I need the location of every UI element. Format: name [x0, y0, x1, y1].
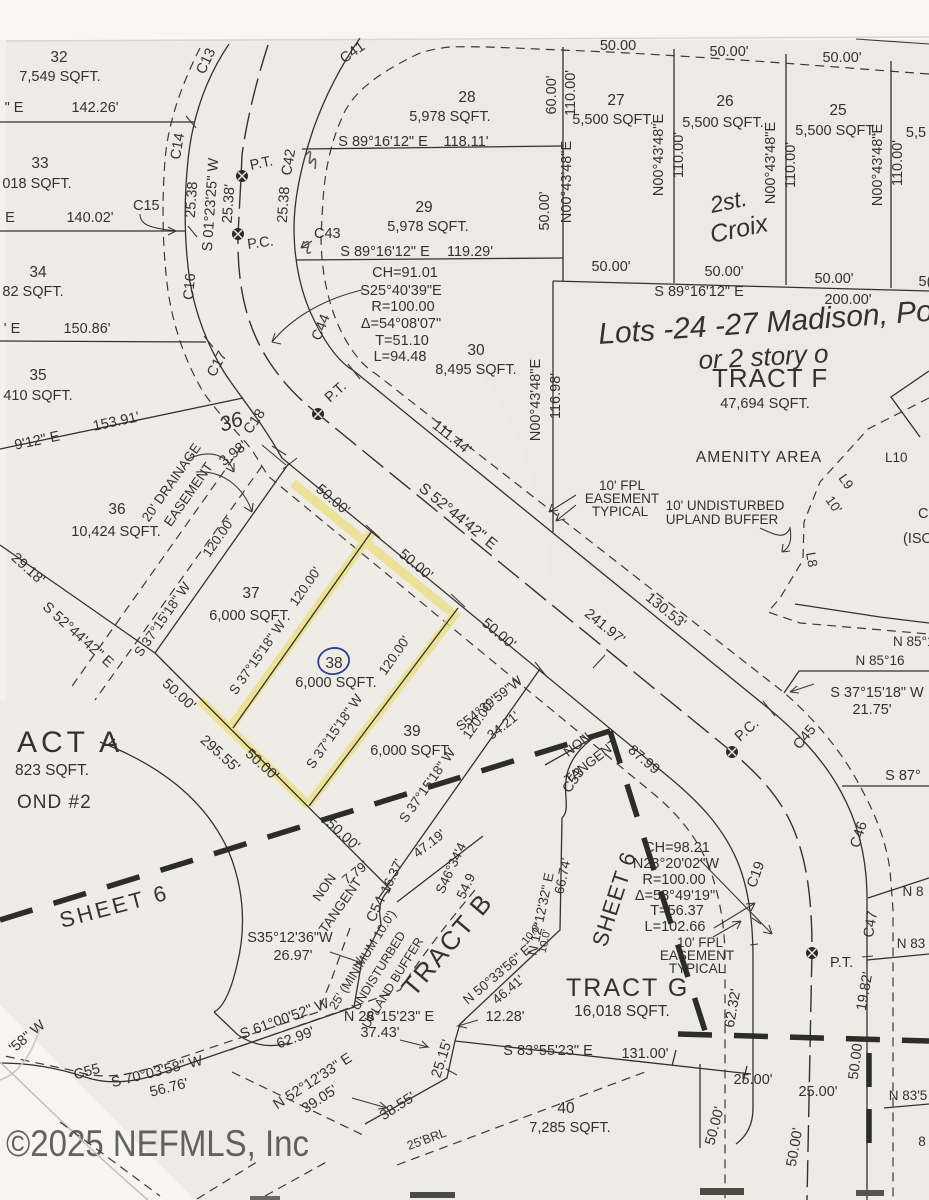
- svg-text:OND #2: OND #2: [17, 792, 92, 813]
- svg-text:110.00': 110.00': [671, 132, 687, 178]
- svg-text:82 SQFT.: 82 SQFT.: [2, 284, 63, 300]
- svg-text:50.00': 50.00': [709, 44, 748, 60]
- svg-text:5,500 SQFT.: 5,500 SQFT.: [682, 115, 763, 131]
- svg-text:Δ=58°49'19": Δ=58°49'19": [635, 888, 715, 904]
- svg-text:150.86': 150.86': [63, 321, 110, 337]
- svg-text:16,018 SQFT.: 16,018 SQFT.: [574, 1003, 670, 1020]
- svg-text:25.38': 25.38': [220, 183, 239, 223]
- svg-text:29: 29: [415, 199, 432, 216]
- svg-text:110.00': 110.00': [783, 142, 799, 188]
- svg-text:ACT A: ACT A: [17, 726, 123, 759]
- svg-text:N00°43'48"E: N00°43'48"E: [651, 114, 667, 197]
- svg-text:S25°40'39"E: S25°40'39"E: [360, 283, 442, 299]
- svg-text:N 28°15'23" E: N 28°15'23" E: [344, 1009, 435, 1025]
- svg-text:39: 39: [403, 723, 420, 740]
- svg-text:018 SQFT.: 018 SQFT.: [2, 176, 71, 192]
- svg-text:E: E: [5, 210, 15, 226]
- svg-text:131.00': 131.00': [621, 1046, 668, 1062]
- svg-text:25.38: 25.38: [275, 186, 293, 223]
- svg-text:50.00': 50.00': [591, 259, 630, 275]
- svg-text:N 83'5: N 83'5: [889, 1088, 928, 1103]
- svg-text:12.28': 12.28': [485, 1009, 524, 1025]
- svg-text:823 SQFT.: 823 SQFT.: [15, 762, 89, 779]
- svg-text:T=51.10: T=51.10: [375, 333, 429, 349]
- svg-text:C43: C43: [314, 226, 341, 242]
- svg-text:25.38: 25.38: [183, 181, 201, 218]
- svg-text:C16: C16: [181, 273, 199, 301]
- svg-text:32: 32: [50, 49, 67, 66]
- svg-text:8,495 SQFT.: 8,495 SQFT.: [435, 362, 516, 378]
- svg-text:Δ=54°08'07": Δ=54°08'07": [361, 316, 441, 332]
- svg-text:110.00': 110.00': [563, 70, 579, 116]
- svg-text:410 SQFT.: 410 SQFT.: [3, 388, 72, 404]
- svg-text:S 37°15'18" W: S 37°15'18" W: [830, 685, 924, 701]
- svg-text:CH=91.01: CH=91.01: [372, 265, 438, 281]
- svg-text:36: 36: [108, 501, 125, 518]
- svg-text:S 89°16'12" E: S 89°16'12" E: [338, 134, 428, 150]
- svg-text:5,978 SQFT.: 5,978 SQFT.: [409, 109, 490, 125]
- svg-text:©2025 NEFMLS, Inc: ©2025 NEFMLS, Inc: [6, 1123, 309, 1164]
- svg-text:5,978 SQFT.: 5,978 SQFT.: [387, 219, 468, 235]
- svg-text:5,5: 5,5: [906, 125, 926, 141]
- svg-text:S 89°16'12" E: S 89°16'12" E: [340, 244, 430, 260]
- svg-text:N00°43'48"E: N00°43'48"E: [559, 141, 575, 224]
- svg-text:38: 38: [325, 655, 342, 672]
- svg-text:UPLAND BUFFER: UPLAND BUFFER: [666, 512, 779, 527]
- svg-text:TYPICAL: TYPICAL: [592, 504, 649, 519]
- svg-text:25: 25: [829, 102, 846, 119]
- svg-text:R=100.00: R=100.00: [642, 872, 705, 888]
- svg-text:119.29': 119.29': [447, 244, 493, 260]
- svg-text:TYPICAL: TYPICAL: [669, 961, 726, 976]
- svg-text:N23°20'02"W: N23°20'02"W: [633, 856, 720, 872]
- svg-text:N 83: N 83: [897, 936, 926, 951]
- svg-text:30: 30: [467, 342, 485, 359]
- svg-text:21.75': 21.75': [852, 702, 891, 718]
- svg-text:27: 27: [607, 92, 624, 109]
- svg-text:35: 35: [29, 367, 46, 384]
- svg-text:C: C: [918, 506, 928, 522]
- svg-text:R=100.00: R=100.00: [371, 299, 434, 315]
- svg-text:L8: L8: [803, 551, 820, 568]
- svg-text:S 87°: S 87°: [885, 768, 921, 784]
- svg-text:7,549 SQFT.: 7,549 SQFT.: [19, 69, 100, 85]
- svg-text:5,500 SQFT.: 5,500 SQFT.: [795, 123, 876, 139]
- svg-text:8: 8: [918, 1134, 926, 1149]
- svg-text:(ISO: (ISO: [903, 531, 929, 547]
- svg-text:140.02': 140.02': [66, 210, 113, 226]
- svg-text:CH=98.21: CH=98.21: [644, 840, 710, 856]
- svg-text:25.00': 25.00': [798, 1084, 837, 1100]
- svg-text:47,694 SQFT.: 47,694 SQFT.: [720, 396, 809, 412]
- svg-text:N 8: N 8: [902, 884, 923, 899]
- svg-text:N00°43'48"E: N00°43'48"E: [763, 122, 779, 205]
- svg-text:50.00': 50.00': [814, 271, 853, 287]
- svg-text:118.11': 118.11': [444, 134, 489, 150]
- svg-text:7,285 SQFT.: 7,285 SQFT.: [529, 1120, 610, 1136]
- svg-text:' E: ' E: [4, 321, 21, 337]
- svg-text:33: 33: [31, 155, 48, 172]
- svg-text:10,424 SQFT.: 10,424 SQFT.: [71, 524, 160, 540]
- svg-text:50.00': 50.00': [704, 264, 743, 280]
- svg-text:37: 37: [242, 585, 259, 602]
- svg-text:S35°12'36"W: S35°12'36"W: [247, 930, 333, 946]
- svg-text:N 85°16: N 85°16: [856, 653, 905, 668]
- svg-text:L=102.66: L=102.66: [645, 919, 706, 935]
- svg-text:L=94.48: L=94.48: [374, 349, 427, 365]
- svg-text:37.43': 37.43': [360, 1025, 399, 1041]
- svg-text:S 83°55'23" E: S 83°55'23" E: [503, 1043, 593, 1059]
- svg-text:C15: C15: [133, 198, 160, 214]
- svg-text:50.00': 50.00': [822, 50, 861, 66]
- svg-text:TRACT G: TRACT G: [566, 974, 689, 1002]
- svg-text:40: 40: [557, 1100, 575, 1117]
- svg-text:60.00': 60.00': [544, 75, 560, 114]
- svg-text:AMENITY AREA: AMENITY AREA: [696, 449, 822, 466]
- svg-text:N00°43'48"E: N00°43'48"E: [528, 359, 544, 442]
- svg-text:50.00: 50.00: [600, 38, 636, 54]
- svg-text:10' UNDISTURBED: 10' UNDISTURBED: [666, 498, 785, 513]
- svg-text:5,500 SQFT.: 5,500 SQFT.: [572, 112, 653, 128]
- svg-text:N 85°16'3: N 85°16'3: [893, 634, 929, 649]
- svg-text:34: 34: [29, 264, 47, 281]
- svg-text:110.00': 110.00': [890, 140, 906, 186]
- svg-text:6,000 SQFT.: 6,000 SQFT.: [295, 675, 376, 691]
- svg-text:P.T.: P.T.: [830, 955, 853, 971]
- svg-text:142.26': 142.26': [71, 100, 118, 116]
- svg-text:" E: " E: [5, 100, 24, 116]
- svg-text:116.98': 116.98': [548, 373, 564, 419]
- svg-text:28: 28: [458, 89, 475, 106]
- svg-text:L10: L10: [885, 450, 908, 465]
- svg-text:T=56.37: T=56.37: [650, 903, 704, 919]
- svg-text:26: 26: [716, 93, 733, 110]
- svg-text:5(: 5(: [919, 274, 929, 290]
- svg-text:26.97': 26.97': [273, 948, 312, 964]
- svg-text:S 89°16'12" E: S 89°16'12" E: [654, 284, 744, 300]
- svg-text:25.00': 25.00': [733, 1072, 772, 1088]
- svg-text:N00°43'48"E: N00°43'48"E: [870, 124, 886, 207]
- svg-text:50.00': 50.00': [537, 191, 553, 230]
